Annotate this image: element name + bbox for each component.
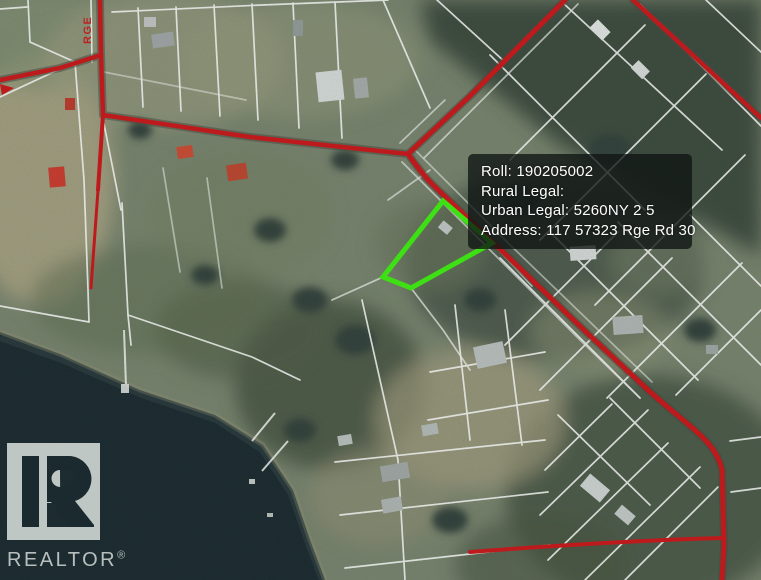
tooltip-address: Address: 117 57323 Rge Rd 30 — [481, 221, 680, 241]
tooltip-roll: Roll: 190205002 — [481, 162, 680, 182]
realtor-logo-icon — [7, 443, 100, 540]
tooltip-urban-legal: Urban Legal: 5260NY 2 5 — [481, 201, 680, 221]
parcel-info-tooltip: Roll: 190205002 Rural Legal: Urban Legal… — [468, 154, 692, 249]
registered-symbol: ® — [117, 549, 125, 561]
tooltip-rural-legal: Rural Legal: — [481, 182, 680, 202]
map-canvas[interactable]: RGE Roll: 190205002 Rural Legal: Urban L… — [0, 0, 761, 580]
realtor-wordmark: REALTOR® — [7, 549, 125, 572]
realtor-watermark: REALTOR® — [7, 443, 125, 572]
